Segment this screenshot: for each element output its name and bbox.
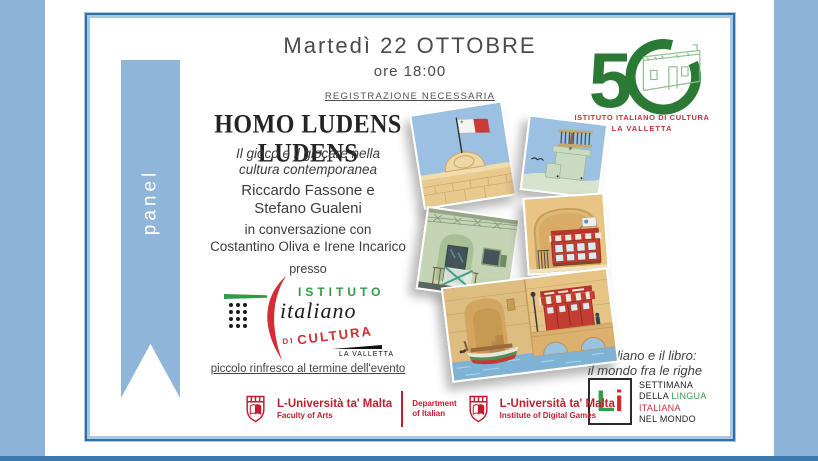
department-line-1: Department [412,399,456,409]
university-crest-icon [466,393,491,425]
iic-black-wedge [332,345,382,349]
institute-name: Institute of Digital Games [500,411,615,420]
department-lockup: Department of Italian [412,399,456,419]
week-line-4: NEL MONDO [639,414,707,425]
tile-ruin-cage-illustration [520,114,609,199]
faculty-name: Faculty of Arts [277,411,392,420]
tile-harbor-book-illustration [441,267,619,383]
uni-institute-lockup: L-Università ta' Malta Institute of Digi… [500,398,615,420]
bottom-border-bar [0,456,818,461]
week-line-3: ITALIANA [639,403,707,414]
tile-red-balcony-illustration [522,192,609,276]
ribbon-label: panel [140,168,162,235]
university-crest-icon [243,393,268,425]
uni-name: L-Università ta' Malta [277,398,392,411]
tile-malta-flag-illustration [409,100,517,210]
left-border-band [0,0,45,456]
week-lingua: LINGUA [671,391,706,401]
iic-dot-grid-icon [229,303,250,331]
event-subtitle: Il gioco e il giocare nella cultura cont… [178,146,438,178]
li-logo-i: i [615,387,623,417]
uni2-name: L-Università ta' Malta [500,398,615,411]
week-della: DELLA [639,391,669,401]
iic-italiano-text: italiano [280,298,356,324]
closing-note: piccolo rinfresco al termine dell'evento [178,363,438,375]
partner-logos-row: L-Università ta' Malta Faculty of Arts D… [243,390,615,428]
anniversary-50-logo: 5 [588,34,706,116]
speakers-line-1: Riccardo Fassone e [178,182,438,200]
iic-logo: ISTITUTO italiano DICULTURA LA VALLETTA [222,276,402,362]
conversation-line-1: in conversazione con [178,221,438,238]
iic-city-text: LA VALLETTA [339,351,394,358]
iic-cultura-text: CULTURA [296,323,373,347]
speakers-line-2: Stefano Gualeni [178,200,438,218]
conversation-line-2: Costantino Oliva e Irene Incarico [178,238,438,255]
week-line-2: DELLA LINGUA [639,391,707,402]
week-line-1: SETTIMANA [639,380,707,391]
conversation: in conversazione con Costantino Oliva e … [178,221,438,255]
venue-intro: presso [178,262,438,276]
department-line-2: of Italian [412,409,456,419]
iic-di-text: DI [282,336,295,346]
right-border-band [774,0,818,456]
speakers: Riccardo Fassone e Stefano Gualeni [178,182,438,217]
settimana-lingua-text: SETTIMANA DELLA LINGUA ITALIANA NEL MOND… [639,380,707,425]
iic-istituto-text: ISTITUTO [298,285,384,299]
subtitle-line-2: cultura contemporanea [178,162,438,178]
subtitle-line-1: Il gioco e il giocare nella [178,146,438,162]
partner-divider [401,391,403,427]
uni-faculty-lockup: L-Università ta' Malta Faculty of Arts [277,398,392,420]
poster-page: panel Martedì 22 OTTOBRE ore 18:00 REGIS… [0,0,818,461]
iic-di-cultura-text: DICULTURA [282,320,403,350]
